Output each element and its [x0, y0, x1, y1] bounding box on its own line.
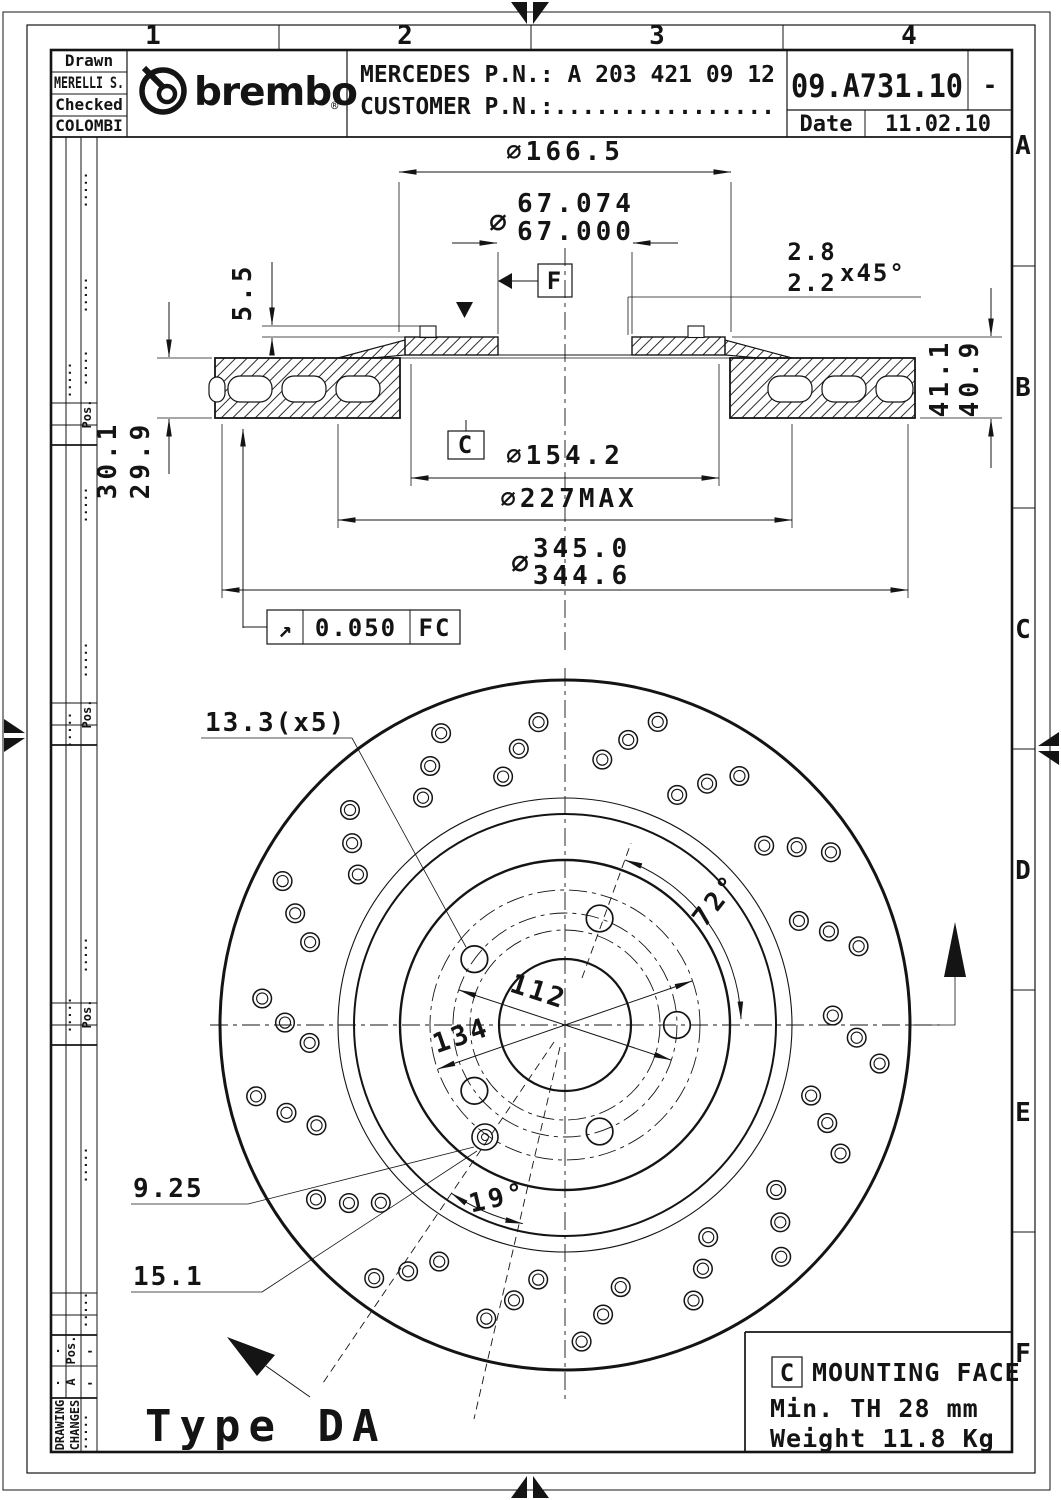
dim-bore-max: 67.074	[517, 189, 635, 219]
strip-dots: ·····	[63, 712, 77, 748]
diameter-symbol: ∅	[511, 546, 529, 581]
row-label-e: E	[1015, 1098, 1031, 1128]
dim-pin-angle: 19°	[466, 1177, 530, 1219]
datum-f-label: F	[547, 267, 563, 295]
date-label: Date	[800, 112, 853, 137]
dim-overall-max: 41.1	[925, 339, 955, 418]
revision-dot: ·	[54, 1344, 61, 1358]
note-weight: Weight 11.8 Kg	[770, 1424, 995, 1453]
strip-dots: ·····	[79, 937, 93, 973]
revision-letter: A	[64, 1378, 78, 1386]
drawing-canvas: 1 2 3 4 A B C D E F Drawn MERELLI S. Che…	[0, 0, 1061, 1500]
drawing-sheet: 1 2 3 4 A B C D E F Drawn MERELLI S. Che…	[0, 0, 1061, 1500]
strip-dots: ·····	[79, 350, 93, 386]
registered-mark: ®	[331, 99, 339, 113]
drawn-name: MERELLI S.	[54, 73, 124, 92]
note-block: C MOUNTING FACE Min. TH 28 mm Weight 11.…	[745, 1332, 1021, 1453]
dim-inner-diameter: ∅227MAX	[500, 484, 638, 514]
row-label-d: D	[1015, 856, 1031, 886]
drawing-changes-label: DRAWING	[53, 1400, 67, 1451]
pin-hole	[472, 1124, 498, 1150]
dim-bore-min: 67.000	[517, 217, 635, 247]
diameter-symbol: ∅	[489, 205, 507, 240]
row-label-a: A	[1015, 131, 1031, 161]
dim-chamfer-max: 2.8	[787, 238, 836, 266]
column-label-3: 3	[649, 21, 665, 51]
checked-label: Checked	[55, 95, 122, 114]
date-value: 11.02.10	[885, 112, 991, 137]
column-label-2: 2	[397, 21, 413, 51]
dim-band-max: 30.1	[93, 421, 123, 500]
customer-part-number: CUSTOMER P.N.:................	[360, 94, 775, 120]
revision-strip: Pos. Pos. Pos. Pos. A - - · · ····· ····…	[51, 137, 97, 1452]
datum-c-flag: C	[448, 420, 484, 459]
strip-dots: ·····	[79, 487, 93, 523]
pos-label: Pos.	[80, 400, 94, 429]
runout-callout: ↗ 0.050 FC	[243, 429, 460, 644]
dim-od-max: 345.0	[533, 534, 631, 564]
front-view: 72° 19° 112 134 13.3(x5) 9.25 15.1 Type …	[131, 668, 966, 1452]
dim-overall-min: 40.9	[955, 339, 985, 418]
datum-c-label: C	[458, 431, 474, 459]
note-datum: C	[780, 1359, 794, 1387]
dim-od-min: 344.6	[533, 561, 631, 591]
rotation-arrow-icon	[908, 922, 966, 1025]
dim-flange-thickness: 5.5	[228, 263, 258, 322]
strip-dots: ·····	[79, 642, 93, 678]
brembo-logo-icon: brembo ®	[142, 68, 357, 115]
row-label-b: B	[1015, 373, 1031, 403]
mercedes-part-number: MERCEDES P.N.: A 203 421 09 12	[360, 62, 775, 88]
dim-pin-b: 15.1	[133, 1262, 204, 1292]
pos-label: Pos.	[64, 1336, 78, 1365]
runout-reference: FC	[419, 614, 452, 642]
note-mounting-face: MOUNTING FACE	[812, 1358, 1021, 1387]
checked-name: COLOMBI	[55, 116, 122, 135]
column-label-1: 1	[145, 21, 161, 51]
runout-icon: ↗	[278, 617, 292, 643]
datum-triangle-icon	[498, 273, 512, 289]
type-label: Type DA	[145, 1401, 386, 1452]
rotation-arrow-icon	[227, 1337, 310, 1397]
datum-f-flag: F	[498, 264, 572, 297]
drawing-number: 09.A731.10	[791, 67, 963, 105]
column-label-4: 4	[901, 21, 917, 51]
strip-dots: ·····	[63, 362, 77, 398]
surface-mark-icon	[456, 302, 473, 318]
vent-slots	[209, 376, 913, 402]
dim-chamfer-min: 2.2	[787, 269, 836, 297]
revision-code: -	[983, 71, 997, 99]
drawn-label: Drawn	[65, 51, 113, 70]
strip-dots: ·····	[79, 1292, 93, 1328]
drilled-holes	[247, 713, 889, 1351]
pos-label: Pos.	[80, 700, 94, 729]
strip-dots: ·····	[79, 172, 93, 208]
dim-flange-diameter: ∅166.5	[506, 137, 624, 167]
runout-value: 0.050	[315, 614, 397, 642]
revision-dot: ·	[54, 1376, 61, 1390]
strip-dots: ·····	[79, 1147, 93, 1183]
dim-chamfer-angle: x45°	[840, 259, 906, 287]
section-view: ∅166.5 ∅ 67.074 67.000 F 2.8 2.2 x45° 5.…	[93, 137, 1002, 652]
revision-dash: -	[86, 1376, 93, 1390]
strip-dots: ·····	[63, 997, 77, 1033]
revision-dash: -	[86, 1344, 93, 1358]
note-min-thickness: Min. TH 28 mm	[770, 1394, 979, 1423]
pos-label: Pos.	[80, 1000, 94, 1029]
title-block: Drawn MERELLI S. Checked COLOMBI brembo …	[51, 50, 1012, 137]
dim-bolt-hole: 13.3(x5)	[205, 708, 346, 738]
drawing-changes-label: CHANGES	[68, 1400, 82, 1451]
row-label-c: C	[1015, 615, 1031, 645]
dim-hat-diameter: ∅154.2	[506, 441, 624, 471]
strip-dots: ·····	[79, 277, 93, 313]
dim-band-min: 29.9	[126, 421, 156, 500]
dim-pin-a: 9.25	[133, 1174, 204, 1204]
